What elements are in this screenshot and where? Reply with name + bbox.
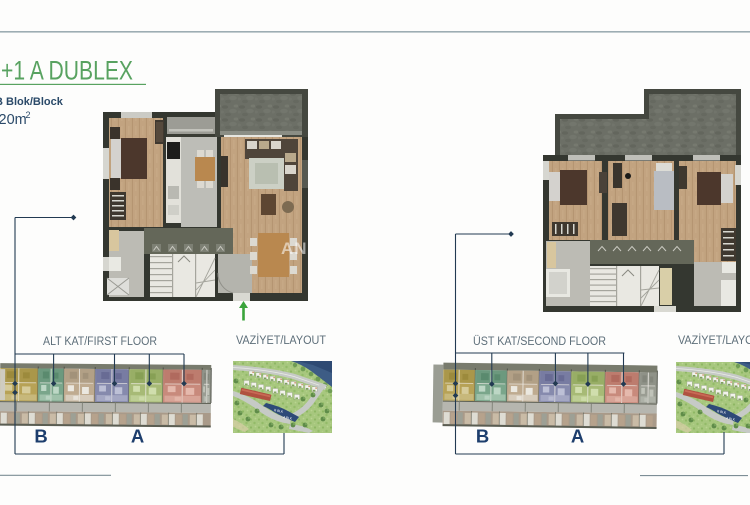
svg-text:B: B [476,426,489,447]
svg-text:VAZİYET/LAYOUT: VAZİYET/LAYOUT [236,334,326,347]
svg-text:A: A [131,426,144,447]
svg-text:B Blok/Block: B Blok/Block [0,96,64,108]
svg-text:20m: 20m [0,112,27,128]
svg-text:A: A [571,426,584,447]
svg-text:+1 A DUBLEX: +1 A DUBLEX [1,56,133,86]
svg-text:ÜST KAT/SECOND FLOOR: ÜST KAT/SECOND FLOOR [473,336,606,348]
svg-text:2: 2 [26,110,31,120]
svg-text:VAZİYET/LAYOUT: VAZİYET/LAYOUT [678,334,750,347]
svg-text:B: B [34,426,47,447]
svg-text:ALT KAT/FIRST FLOOR: ALT KAT/FIRST FLOOR [43,336,157,348]
svg-text:AN: AN [281,239,308,258]
